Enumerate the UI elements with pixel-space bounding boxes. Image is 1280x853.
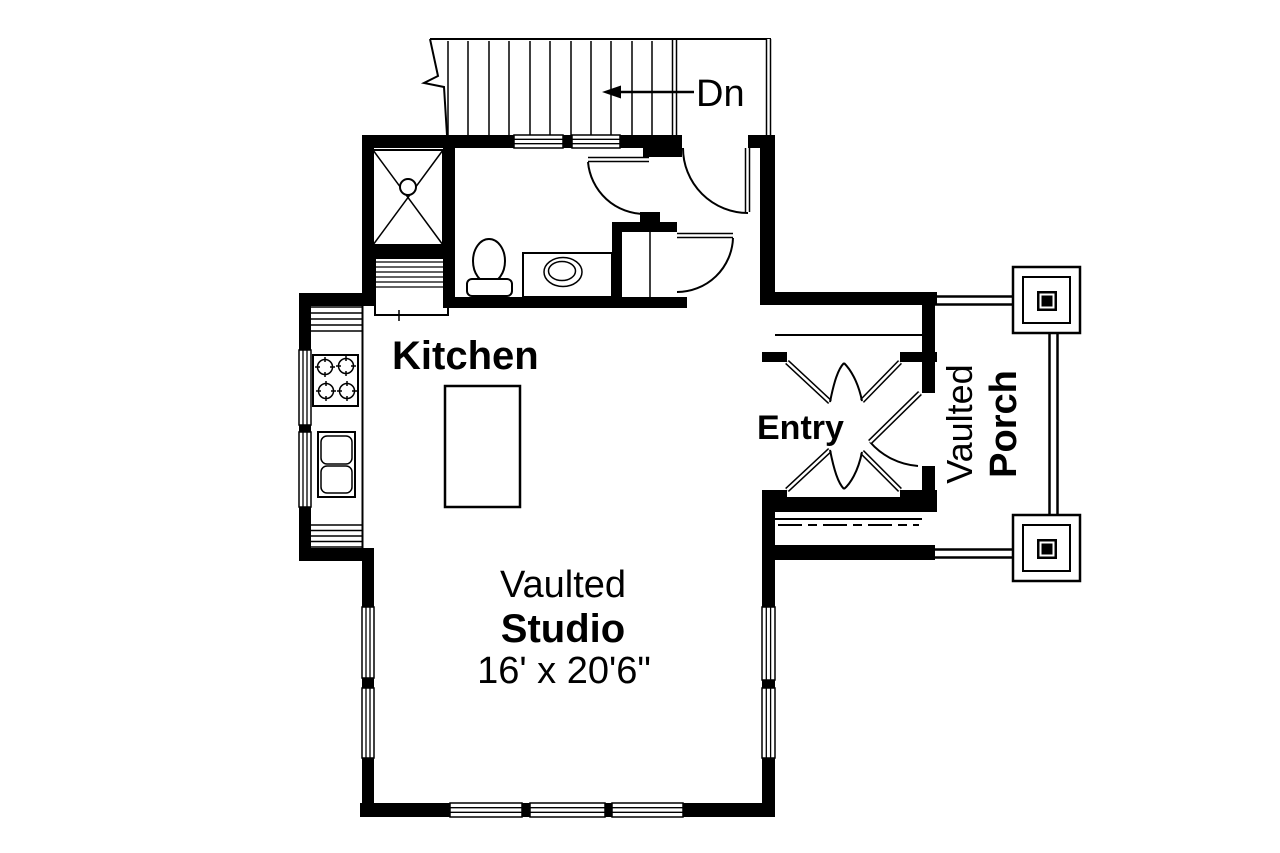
- porch-label-line1: Vaulted: [939, 364, 980, 483]
- window: [362, 607, 374, 678]
- shower: [373, 150, 443, 245]
- counter-shelves-top: [311, 307, 362, 331]
- porch-column-bottom: [1013, 515, 1080, 581]
- window: [362, 688, 374, 758]
- window: [299, 350, 311, 425]
- studio-dimensions: 16' x 20'6": [477, 650, 651, 692]
- front-door: [870, 393, 920, 466]
- porch-column-top: [1013, 267, 1080, 333]
- closet-door: [677, 236, 733, 293]
- entry-label: Entry: [757, 409, 844, 447]
- stair-hall-door: [683, 148, 748, 213]
- window: [572, 135, 620, 148]
- staircase: Dn: [424, 39, 771, 135]
- window: [450, 803, 522, 817]
- counter-shelves-bottom: [311, 525, 362, 547]
- toilet: [467, 239, 512, 296]
- window: [530, 803, 605, 817]
- studio-label-line2: Studio: [501, 607, 625, 651]
- floor-plan: Dn: [0, 0, 1280, 853]
- window: [762, 607, 775, 680]
- stair-treads: [448, 41, 652, 135]
- porch: Vaulted Porch: [932, 267, 1080, 581]
- window: [514, 135, 563, 148]
- floor-plan-page: Dn: [0, 0, 1280, 853]
- studio-labels: Vaulted Studio 16' x 20'6": [477, 564, 651, 692]
- refrigerator: [375, 258, 448, 321]
- kitchen-sink: [318, 432, 355, 497]
- break-line-icon: [424, 39, 447, 135]
- shower-drain-icon: [400, 179, 416, 195]
- kitchen-label: Kitchen: [392, 334, 539, 378]
- interior-walls: [372, 148, 687, 308]
- kitchen-island: [445, 386, 520, 507]
- window: [299, 432, 311, 507]
- stairs-down-label: Dn: [696, 73, 745, 115]
- range-stove: [313, 355, 358, 406]
- bathroom: [373, 150, 649, 297]
- closet: [650, 232, 733, 297]
- vanity-sink: [523, 253, 612, 297]
- window: [762, 688, 775, 758]
- window: [612, 803, 683, 817]
- bathroom-door: [588, 160, 649, 215]
- studio-label-line1: Vaulted: [500, 564, 626, 606]
- porch-label-line2: Porch: [983, 370, 1025, 478]
